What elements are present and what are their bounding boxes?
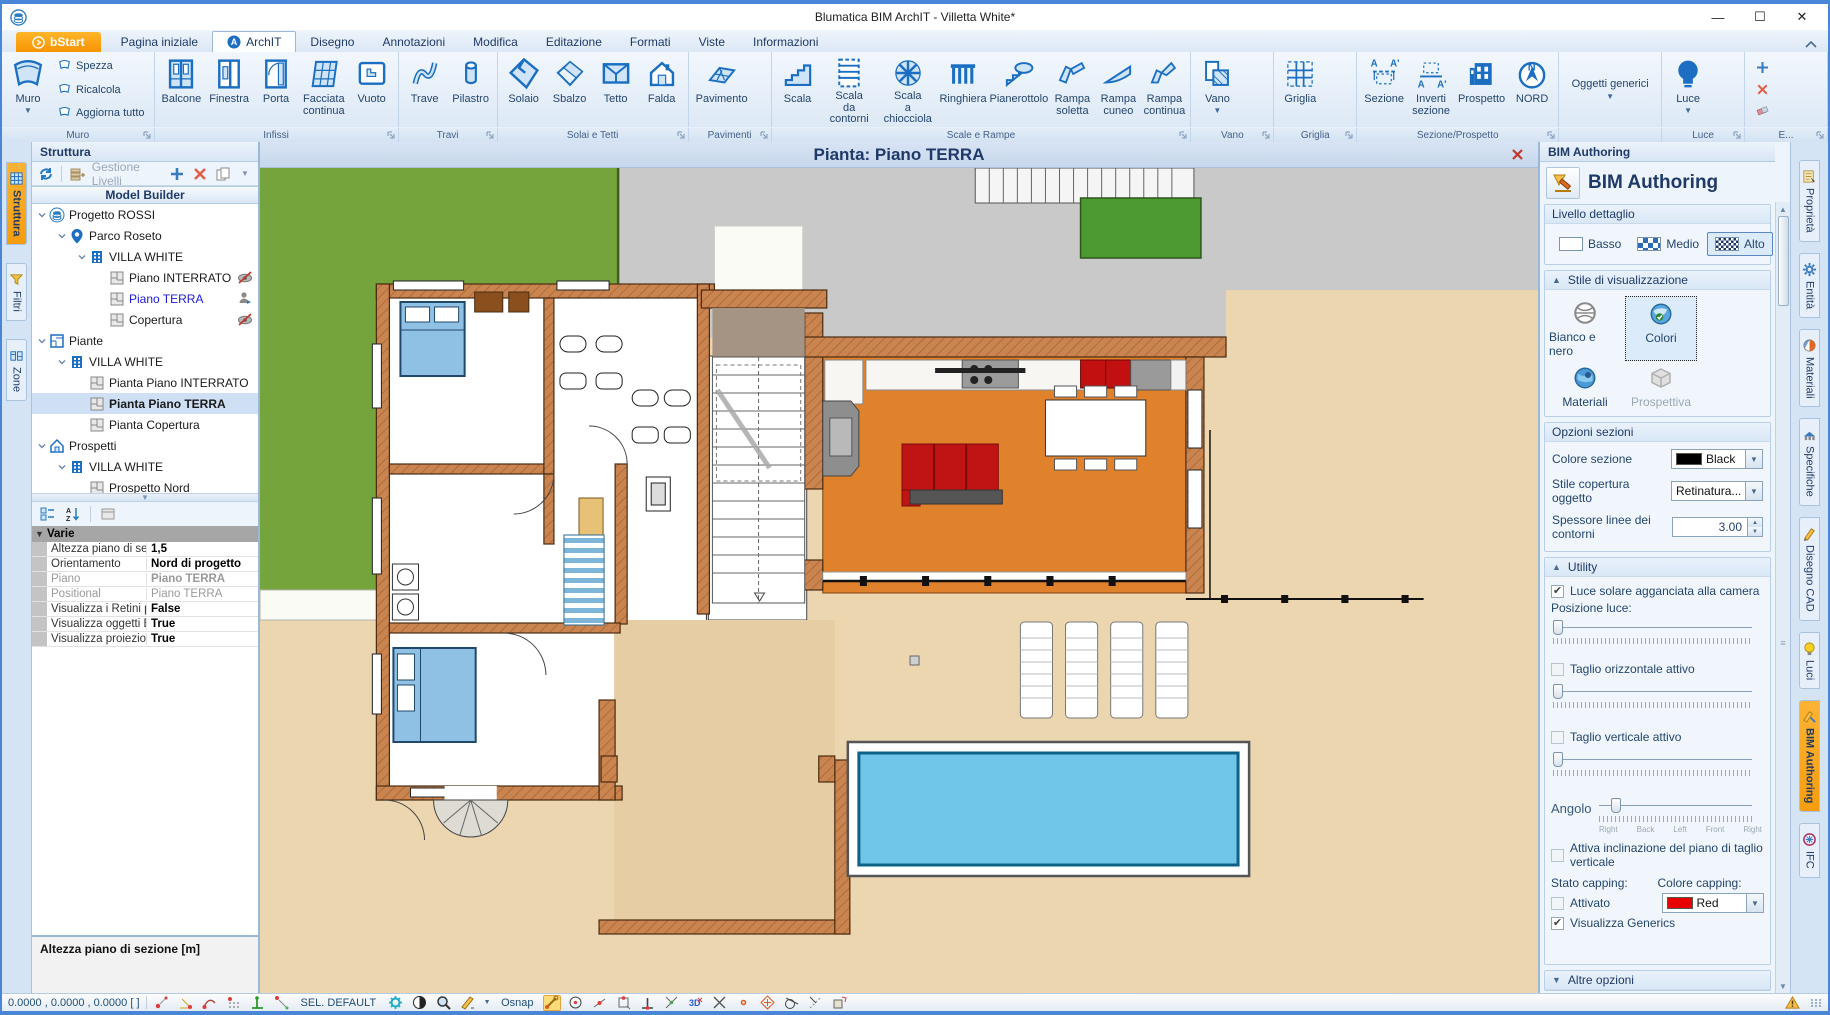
warning-icon[interactable] xyxy=(1783,995,1801,1011)
ribbon-button-tetto[interactable]: Tetto xyxy=(593,53,639,126)
wall-tool-icon xyxy=(57,57,72,75)
sun-light-checkbox[interactable]: ✔Luce solare agganciata alla camera xyxy=(1551,584,1764,598)
ribbon-group-solai-e-tetti: Solaio Sbalzo Tetto Falda xyxy=(498,52,689,127)
ribbon-button-plus[interactable] xyxy=(1750,58,1775,77)
ribbon-group-griglia: Griglia xyxy=(1274,52,1357,127)
snap-tool-1-icon[interactable] xyxy=(153,995,171,1011)
tree-item-pianta-piano-interrato[interactable]: Pianta Piano INTERRATO xyxy=(32,372,258,393)
osnap-mode-7-icon[interactable]: 3D xyxy=(687,995,705,1011)
garden-path xyxy=(260,590,380,620)
detail-option-alto[interactable]: Alto xyxy=(1707,232,1773,256)
ribbon-button-sbalzo[interactable]: Sbalzo xyxy=(547,53,593,126)
bed-master xyxy=(400,302,464,376)
pin-icon xyxy=(67,228,86,244)
chevron-down-icon[interactable]: ▼ xyxy=(238,166,252,182)
categorize-icon[interactable] xyxy=(38,506,56,522)
ribbon-group-luce: Luce▼ xyxy=(1662,52,1745,127)
ribbon-button-luce[interactable]: Luce▼ xyxy=(1665,53,1711,126)
lawn-patch xyxy=(1081,198,1201,258)
detail-level-title: Livello dettaglio xyxy=(1552,207,1635,221)
delete-icon[interactable] xyxy=(192,166,208,182)
ribbon-group-e- xyxy=(1745,52,1828,127)
tilt-plane-checkbox[interactable]: Attiva inclinazione del piano di taglio … xyxy=(1551,841,1764,869)
inverti-sezione-icon: AA' xyxy=(1414,55,1448,93)
left-tab-strip: StrutturaFiltriZone xyxy=(2,142,32,993)
pavimento-icon xyxy=(705,55,739,93)
tree-item-piano-terra[interactable]: Piano TERRA xyxy=(32,288,258,309)
property-row-altezza-piano-di-sezi[interactable]: Altezza piano di sezi1,5 xyxy=(32,542,258,557)
ribbon-group-label: Travi xyxy=(399,128,498,142)
wardrobe-2 xyxy=(509,292,529,312)
ribbon-button-finestra[interactable]: Finestra xyxy=(205,53,253,126)
tree-item-progetto-rossi[interactable]: Progetto ROSSI xyxy=(32,204,258,225)
ribbon-tab-formati[interactable]: Formati xyxy=(616,32,685,52)
eyeoff-icon[interactable] xyxy=(237,311,253,330)
option-row-spessore-linee-dei-contorni: Spessore linee dei contorni3.00▲▼ xyxy=(1545,509,1770,545)
ribbon-button-aggiorna-tutto[interactable]: Aggiorna tutto xyxy=(53,103,149,123)
building-icon xyxy=(67,354,86,370)
style-option-materiali[interactable]: Materiali xyxy=(1549,361,1621,412)
scala-icon xyxy=(781,55,815,93)
sofa xyxy=(902,444,1002,506)
swatch-low xyxy=(1559,237,1583,251)
angle-ticks: RightBackLeftFrontRight xyxy=(1599,825,1762,834)
copy-icon[interactable] xyxy=(215,166,231,182)
property-row-piano[interactable]: PianoPiano TERRA xyxy=(32,572,258,587)
svg-text:A': A' xyxy=(1437,79,1446,90)
property-row-positional[interactable]: PositionalPiano TERRA xyxy=(32,587,258,602)
scala-da-contorni-icon xyxy=(832,55,866,90)
collapse-ribbon-icon[interactable] xyxy=(1804,40,1818,49)
svg-text:A: A xyxy=(1418,79,1425,90)
left-tab-filtri[interactable]: Filtri xyxy=(6,263,27,321)
fireplace xyxy=(823,401,859,476)
ribbon-button-pianerottolo[interactable]: Pianerottolo xyxy=(988,53,1049,126)
ribbon-group-label: Griglia xyxy=(1274,128,1357,142)
ribbon-button-rampa-soletta[interactable]: Rampasoletta xyxy=(1049,53,1095,126)
solaio-icon xyxy=(507,55,541,93)
ribbon-button-sezione[interactable]: AA' Sezione xyxy=(1360,53,1408,126)
ribbon-button-pilastro[interactable]: Pilastro xyxy=(448,53,494,126)
utility-title: Utility xyxy=(1568,560,1597,574)
tree-item-piante[interactable]: Piante xyxy=(32,330,258,351)
ribbon-tab-archit[interactable]: AArchIT xyxy=(212,31,296,52)
tree-item-villa-white[interactable]: VILLA WHITE xyxy=(32,456,258,477)
osnap-mode-12-icon[interactable] xyxy=(807,995,825,1011)
bim-panel-header: BIM Authoring xyxy=(1540,142,1775,162)
eyeoff-icon[interactable] xyxy=(237,269,253,288)
title-bar: Blumatica BIM ArchIT - Villetta White* —… xyxy=(2,4,1828,30)
right-tab-strip: ProprietàEntitàMaterialiSpecificheDisegn… xyxy=(1790,142,1828,993)
striped-mat xyxy=(564,535,604,625)
more-options-group: ▼Altre opzioni xyxy=(1544,970,1771,991)
wall-tool-icon xyxy=(57,81,72,99)
chevron-down-icon[interactable]: ▼ xyxy=(482,995,492,1011)
osnap-mode-10-icon[interactable] xyxy=(759,995,777,1011)
ribbon-group-label: Muro xyxy=(2,128,155,142)
vertical-cut-slider[interactable] xyxy=(1553,751,1762,777)
bed-second xyxy=(393,648,475,742)
tree-item-villa-white[interactable]: VILLA WHITE xyxy=(32,351,258,372)
swimming-pool xyxy=(848,742,1249,876)
ribbon-group-label: E... xyxy=(1745,128,1828,142)
capping-color-label: Colore capping: xyxy=(1658,876,1765,890)
tree-item-pianta-copertura[interactable]: Pianta Copertura xyxy=(32,414,258,435)
ribbon-button-scala[interactable]: Scala xyxy=(775,53,821,126)
houseN-icon xyxy=(87,480,106,493)
ribbon-group-label: Vano xyxy=(1191,128,1274,142)
detail-level-group: Livello dettaglio BassoMedioAlto xyxy=(1544,204,1771,265)
building-icon xyxy=(87,249,106,265)
ribbon-tab-pagina-iniziale[interactable]: Pagina iniziale xyxy=(107,32,212,52)
ticon-cad xyxy=(1802,526,1817,541)
style-option-colori[interactable]: Colori xyxy=(1625,296,1697,361)
ribbon-group-label: Infissi xyxy=(155,128,399,142)
property-grid: ▼Varie Altezza piano di sezi1,5 Orientam… xyxy=(32,526,258,647)
capping-enabled-checkbox[interactable]: Attivato xyxy=(1551,896,1658,910)
selection-mode-label: SEL. DEFAULT xyxy=(301,997,377,1009)
ribbon-tab-bar: bStartPagina inizialeAArchITDisegnoAnnot… xyxy=(2,30,1828,52)
view-tool-1-icon[interactable] xyxy=(386,995,404,1011)
ticon-funnel xyxy=(9,272,24,287)
falda-icon xyxy=(645,55,679,93)
ribbon-toolbar: Muro▼ SpezzaRicalcolaAggiorna tutto Balc… xyxy=(2,52,1828,127)
bim-pencil-icon xyxy=(1546,167,1580,199)
model-builder-header: Model Builder xyxy=(32,186,258,204)
manage-levels-icon[interactable] xyxy=(69,166,85,182)
ticon-zone xyxy=(9,348,24,363)
building-icon xyxy=(67,459,86,475)
ribbon-group-infissi: Balcone Finestra Porta Facciatacontinua … xyxy=(155,52,399,127)
ribbon-button-vuoto[interactable]: Vuoto xyxy=(349,53,395,126)
sort-az-icon[interactable]: AZ xyxy=(64,506,82,522)
ribbon-button-griglia[interactable]: Griglia xyxy=(1277,53,1323,126)
manage-levels-label: Gestione Livelli xyxy=(92,160,156,188)
view-tool-4-icon[interactable] xyxy=(458,995,476,1011)
resize-grip[interactable] xyxy=(1811,999,1822,1007)
ribbon-button-balcone[interactable]: Balcone xyxy=(158,53,206,126)
floor-icon xyxy=(87,417,106,433)
wall-tool-icon xyxy=(57,104,72,122)
snap-tool-5-icon[interactable] xyxy=(249,995,267,1011)
elev-icon xyxy=(47,438,66,454)
ribbon-button-pavimento[interactable]: Pavimento xyxy=(692,53,752,126)
tree-item-copertura[interactable]: Copertura xyxy=(32,309,258,330)
view-title-bar: Pianta: Piano TERRA xyxy=(260,142,1538,168)
osnap-mode-6-icon[interactable] xyxy=(663,995,681,1011)
ticon-bim xyxy=(1802,709,1817,724)
left-tab-zone[interactable]: Zone xyxy=(6,339,27,401)
osnap-mode-4-icon[interactable] xyxy=(615,995,633,1011)
property-row-visualizza-proiezioni[interactable]: Visualizza proiezioniTrue xyxy=(32,632,258,647)
ribbon-button-porta[interactable]: Porta xyxy=(253,53,299,126)
cubegray-icon xyxy=(1649,366,1673,393)
swatch-high xyxy=(1715,237,1739,251)
entry-porch xyxy=(712,308,804,357)
tree-item-piano-interrato[interactable]: Piano INTERRATO xyxy=(32,267,258,288)
ribbon-tab-bstart[interactable]: bStart xyxy=(16,32,101,52)
vuoto-icon xyxy=(355,55,389,93)
style-option-prospettiva[interactable]: Prospettiva xyxy=(1625,361,1697,412)
ribbon-button-spezza[interactable]: Spezza xyxy=(53,56,149,76)
muro-icon xyxy=(10,55,46,93)
model-tree: Progetto ROSSI Parco Roseto VILLA WHITE … xyxy=(32,204,258,493)
floor-icon xyxy=(107,291,126,307)
ribbon-group-pavimenti: Pavimento xyxy=(689,52,772,127)
ribbon-tab-informazioni[interactable]: Informazioni xyxy=(739,32,832,52)
snap-tool-6-icon[interactable] xyxy=(273,995,291,1011)
ribbon-group-label: Solai e Tetti xyxy=(498,128,689,142)
property-row-orientamento[interactable]: OrientamentoNord di progetto xyxy=(32,557,258,572)
section-options-title: Opzioni sezioni xyxy=(1552,425,1633,439)
ribbon-button-ricalcola[interactable]: Ricalcola xyxy=(53,80,149,100)
ribbon-button-xred[interactable] xyxy=(1750,80,1775,99)
bim-authoring-panel: BIM Authoring BIM Authoring Livello dett… xyxy=(1538,142,1790,993)
swatch-med xyxy=(1637,237,1661,251)
ticon-gear xyxy=(1802,262,1817,277)
snap-tool-2-icon[interactable] xyxy=(177,995,195,1011)
ticon-spec xyxy=(1802,427,1817,442)
right-tab-bim-authoring[interactable]: BIM Authoring xyxy=(1799,700,1820,812)
right-tab-ifc[interactable]: IFC xyxy=(1799,823,1820,878)
angle-label: Angolo xyxy=(1551,801,1591,816)
sezione-icon: AA' xyxy=(1367,55,1401,93)
application-window: Blumatica BIM ArchIT - Villetta White* —… xyxy=(0,0,1830,1015)
osnap-mode-9-icon[interactable] xyxy=(735,995,753,1011)
view-close-icon[interactable] xyxy=(1509,146,1526,163)
sbalzo-icon xyxy=(553,55,587,93)
osnap-mode-1-icon[interactable] xyxy=(543,995,561,1011)
prospetto-icon xyxy=(1465,55,1499,93)
ribbon-tab-editazione[interactable]: Editazione xyxy=(532,32,616,52)
right-tab-luci[interactable]: Luci xyxy=(1799,632,1820,689)
selection-grip[interactable] xyxy=(910,656,919,665)
ribbon-group-label: Scale e Rampe xyxy=(772,128,1192,142)
tree-item-prospetti[interactable]: Prospetti xyxy=(32,435,258,456)
ribbon-button-oggetti-generici[interactable]: Oggetti generici ▼ xyxy=(1562,53,1658,126)
detail-option-medio[interactable]: Medio xyxy=(1629,232,1707,256)
ribbon-button-solaio[interactable]: Solaio xyxy=(501,53,547,126)
ribbon-group-label: Pavimenti xyxy=(689,128,772,142)
user-icon[interactable] xyxy=(237,290,253,309)
panel-splitter[interactable]: ▼ xyxy=(32,493,258,502)
capping-state-label: Stato capping: xyxy=(1551,876,1658,890)
snap-tool-3-icon[interactable] xyxy=(201,995,219,1011)
nord-icon: N xyxy=(1515,55,1549,93)
style-dropdown[interactable]: Retinatura...▼ xyxy=(1671,481,1763,501)
property-pages-icon xyxy=(99,506,117,522)
ribbon-group-vano: Vano▼ xyxy=(1191,52,1274,127)
ribbon-group-label xyxy=(1559,128,1662,142)
pilastro-icon xyxy=(454,55,488,93)
ribbon-button-scala-a-chiocciola[interactable]: Scalaa chiocciola xyxy=(878,53,938,126)
ribbon-group-label: Luce xyxy=(1662,128,1745,142)
visual-style-group: ▲Stile di visualizzazione Bianco e neroC… xyxy=(1544,270,1771,417)
finestra-icon xyxy=(212,55,246,93)
snap-tool-4-icon[interactable] xyxy=(225,995,243,1011)
osnap-mode-11-icon[interactable] xyxy=(783,995,801,1011)
ribbon-tab-viste[interactable]: Viste xyxy=(685,32,739,52)
entry-walkway xyxy=(714,226,802,290)
view-title: Pianta: Piano TERRA xyxy=(814,145,985,165)
tree-item-prospetto-nord[interactable]: Prospetto Nord xyxy=(32,477,258,493)
line-weight-spinner[interactable]: 3.00▲▼ xyxy=(1672,517,1763,537)
pianerottolo-icon xyxy=(1002,55,1036,93)
ticon-bulb xyxy=(1802,641,1817,656)
style-option-bianco-e-nero[interactable]: Bianco e nero xyxy=(1549,296,1621,361)
right-tab-specifiche[interactable]: Specifiche xyxy=(1799,418,1820,506)
drawing-view: Pianta: Piano TERRA xyxy=(260,142,1538,993)
facciata-continua-icon xyxy=(307,55,341,93)
svg-text:A: A xyxy=(1371,59,1378,70)
horizontal-cut-slider[interactable] xyxy=(1553,683,1762,709)
ribbon-button-muro[interactable]: Muro▼ xyxy=(5,53,51,126)
vertical-cut-checkbox[interactable]: Taglio verticale attivo xyxy=(1551,730,1764,744)
ribbon-button-ringhiera[interactable]: Ringhiera xyxy=(938,53,989,126)
view-tool-2-icon[interactable] xyxy=(410,995,428,1011)
visual-style-title: Stile di visualizzazione xyxy=(1568,273,1688,287)
ticon-prop xyxy=(1802,169,1817,184)
ticon-ifc xyxy=(1802,832,1817,847)
rampa-cuneo-icon xyxy=(1101,55,1135,93)
property-row-visualizza-oggetti-bi[interactable]: Visualizza oggetti BITrue xyxy=(32,617,258,632)
osnap-label: Osnap xyxy=(501,997,533,1009)
tree-item-parco-roseto[interactable]: Parco Roseto xyxy=(32,225,258,246)
option-row-colore-sezione: Colore sezioneBlack▼ xyxy=(1545,445,1770,473)
more-options-title: Altre opzioni xyxy=(1568,973,1634,987)
floor-icon xyxy=(107,312,126,328)
window-title: Blumatica BIM ArchIT - Villetta White* xyxy=(2,10,1828,24)
osnap-mode-2-icon[interactable] xyxy=(567,995,585,1011)
porta-icon xyxy=(259,55,293,93)
floor-icon xyxy=(87,396,106,412)
ribbon-tab-disegno[interactable]: Disegno xyxy=(296,32,368,52)
light-position-label: Posizione luce: xyxy=(1551,601,1764,615)
detail-option-basso[interactable]: Basso xyxy=(1551,232,1629,256)
svg-text:A: A xyxy=(231,37,238,47)
ribbon-button-vano[interactable]: Vano▼ xyxy=(1194,53,1240,126)
plans-icon xyxy=(47,333,66,349)
osnap-mode-8-icon[interactable] xyxy=(711,995,729,1011)
structure-panel: Struttura Gestione Livelli ▼ Model Build… xyxy=(32,142,260,993)
tree-item-villa-white[interactable]: VILLA WHITE xyxy=(32,246,258,267)
show-generics-checkbox[interactable]: ✔Visualizza Generics xyxy=(1551,916,1764,930)
section-options-group: Opzioni sezioni Colore sezioneBlack▼Stil… xyxy=(1544,422,1771,552)
griglia-icon xyxy=(1283,55,1317,93)
angle-slider[interactable] xyxy=(1599,797,1762,823)
vano-icon xyxy=(1200,55,1234,93)
view-tool-3-icon[interactable] xyxy=(434,995,452,1011)
property-description: Altezza piano di sezione [m] xyxy=(32,935,258,993)
svg-text:Z: Z xyxy=(66,516,71,522)
coordinates-readout: 0.0000 , 0.0000 , 0.0000 [ ] xyxy=(8,997,140,1009)
ribbon-button-rampa-continua[interactable]: Rampacontinua xyxy=(1141,53,1187,126)
rampa-continua-icon xyxy=(1147,55,1181,93)
rampa-soletta-icon xyxy=(1055,55,1089,93)
globecolor-icon xyxy=(1649,302,1673,329)
left-tab-struttura[interactable]: Struttura xyxy=(6,162,27,245)
status-bar: 0.0000 , 0.0000 , 0.0000 [ ]SEL. DEFAULT… xyxy=(2,993,1828,1011)
ringhiera-icon xyxy=(946,55,980,93)
ribbon-group-muro: Muro▼ SpezzaRicalcolaAggiorna tutto xyxy=(2,52,155,127)
ribbon-button-prospetto[interactable]: Prospetto xyxy=(1454,53,1509,126)
ribbon-group-label: Sezione/Prospetto xyxy=(1357,128,1559,142)
ribbon-button-falda[interactable]: Falda xyxy=(639,53,685,126)
osnap-mode-3-icon[interactable] xyxy=(591,995,609,1011)
option-row-stile-copertura-oggetto: Stile copertura oggettoRetinatura...▼ xyxy=(1545,473,1770,509)
ribbon-group-labels: MuroInfissiTraviSolai e TettiPavimentiSc… xyxy=(2,127,1828,142)
properties-toolbar: AZ xyxy=(32,502,258,526)
osnap-mode-13-icon[interactable] xyxy=(831,995,849,1011)
ribbon-button-eraser[interactable] xyxy=(1750,102,1775,121)
staircase xyxy=(712,357,804,603)
globebw-icon xyxy=(1573,301,1597,328)
ribbon-group-travi: Trave Pilastro xyxy=(399,52,498,127)
color-dropdown[interactable]: Black▼ xyxy=(1671,449,1763,469)
capping-color-dropdown[interactable]: Red▼ xyxy=(1662,893,1765,913)
ribbon-tab-annotazioni[interactable]: Annotazioni xyxy=(368,32,459,52)
ribbon-button-scala-da-contorni[interactable]: Scalada contorni xyxy=(821,53,878,126)
luce-icon xyxy=(1671,55,1705,93)
tree-item-pianta-piano-terra[interactable]: Pianta Piano TERRA xyxy=(32,393,258,414)
horizontal-cut-checkbox[interactable]: Taglio orizzontale attivo xyxy=(1551,662,1764,676)
patio-floor xyxy=(614,620,835,920)
ribbon-tab-modifica[interactable]: Modifica xyxy=(459,32,532,52)
ribbon-button-inverti-sezione[interactable]: AA' Invertisezione xyxy=(1408,53,1454,126)
ticon-mat xyxy=(1802,338,1817,353)
light-position-slider[interactable] xyxy=(1553,619,1762,645)
property-category[interactable]: ▼Varie xyxy=(32,526,258,542)
balcone-icon xyxy=(164,55,198,93)
right-tab-entit-[interactable]: Entità xyxy=(1799,253,1820,318)
scala-a-chiocciola-icon xyxy=(891,55,925,90)
ribbon-group-scale-e-rampe: Scala Scalada contorni Scalaa chiocciola… xyxy=(772,52,1192,127)
bim-panel-title: BIM Authoring xyxy=(1544,162,1771,204)
globemat-icon xyxy=(1573,366,1597,393)
osnap-mode-5-icon[interactable] xyxy=(639,995,657,1011)
right-tab-materiali[interactable]: Materiali xyxy=(1799,329,1820,408)
structure-toolbar: Gestione Livelli ▼ xyxy=(32,162,258,186)
ticon-grid xyxy=(9,171,24,186)
ribbon-button-rampa-cuneo[interactable]: Rampacuneo xyxy=(1095,53,1141,126)
ribbon-button-facciata-continua[interactable]: Facciatacontinua xyxy=(299,53,349,126)
floor-icon xyxy=(87,375,106,391)
ribbon-group-misc: Oggetti generici ▼ xyxy=(1559,52,1662,127)
floor-icon xyxy=(107,270,126,286)
ribbon-button-trave[interactable]: Trave xyxy=(402,53,448,126)
trave-icon xyxy=(408,55,442,93)
add-icon[interactable] xyxy=(169,166,185,182)
property-row-visualizza-i-retini-pe[interactable]: Visualizza i Retini peFalse xyxy=(32,602,258,617)
refresh-icon[interactable] xyxy=(38,166,54,182)
utility-group: ▲Utility ✔Luce solare agganciata alla ca… xyxy=(1544,557,1771,965)
svg-text:A: A xyxy=(66,508,71,515)
project-icon xyxy=(47,207,66,223)
panel-scrollbar[interactable]: ▲ ≡ ▼ xyxy=(1775,202,1790,993)
svg-text:A': A' xyxy=(1390,59,1399,70)
tetto-icon xyxy=(599,55,633,93)
wardrobe xyxy=(475,292,503,312)
ribbon-group-sezione-prospetto: AA' Sezione AA' Invertisezione Prospetto… xyxy=(1357,52,1559,127)
floor-plan-canvas[interactable] xyxy=(260,168,1538,993)
right-tab-propriet-[interactable]: Proprietà xyxy=(1799,160,1820,242)
ribbon-button-nord[interactable]: N NORD xyxy=(1509,53,1555,126)
right-tab-disegno-cad[interactable]: Disegno CAD xyxy=(1799,517,1820,621)
